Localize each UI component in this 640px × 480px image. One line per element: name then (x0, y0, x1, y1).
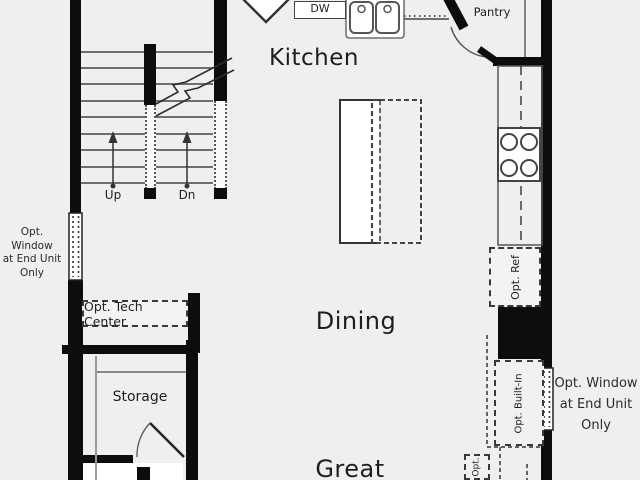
kitchen-label: Kitchen (268, 46, 360, 71)
storage-label: Storage (106, 390, 174, 405)
opt-built-in-box: Opt. Built-In (494, 360, 544, 446)
note-line: Opt. Window (0, 226, 64, 253)
note-line: at End Unit (0, 253, 64, 267)
note-line: Only (0, 267, 64, 281)
great-room-label: Great (306, 456, 394, 480)
stairs-down-label: Dn (174, 189, 200, 202)
cooktop (498, 128, 540, 181)
dining-label: Dining (314, 308, 398, 334)
opt-tech-center-box: Opt. Tech Center (82, 300, 188, 327)
note-line: Opt. Window (552, 373, 640, 394)
dishwasher-label: DW (294, 3, 346, 15)
up-arrow (109, 131, 118, 189)
note-line: Only (552, 415, 640, 436)
window-symbol-left (69, 213, 82, 280)
stairs-up-label: Up (100, 189, 126, 202)
kitchen-sink (346, 0, 404, 38)
opt-partial-label: Opt. (472, 457, 482, 476)
opt-window-note-left: Opt. Window at End Unit Only (0, 226, 64, 280)
pantry-label: Pantry (466, 6, 518, 19)
storage-door (137, 423, 184, 457)
opt-ref-label: Opt. Ref (509, 255, 522, 300)
stair-break-line (156, 58, 234, 116)
kitchen-island (340, 100, 421, 243)
floorplan-canvas: DW Kitchen Dining Great Pantry Storage U… (0, 0, 640, 480)
opt-partial-box: Opt. (464, 454, 490, 480)
floorplan-linework (0, 0, 640, 480)
opt-window-note-right: Opt. Window at End Unit Only (552, 373, 640, 436)
opt-tech-center-label: Opt. Tech Center (84, 299, 186, 329)
down-arrow (183, 131, 192, 189)
opt-built-in-label: Opt. Built-In (514, 373, 525, 433)
opt-ref-box: Opt. Ref (489, 247, 541, 307)
storage-interior-lines (96, 356, 186, 480)
note-line: at End Unit (552, 394, 640, 415)
corner-cabinet-diamond (240, 0, 292, 22)
